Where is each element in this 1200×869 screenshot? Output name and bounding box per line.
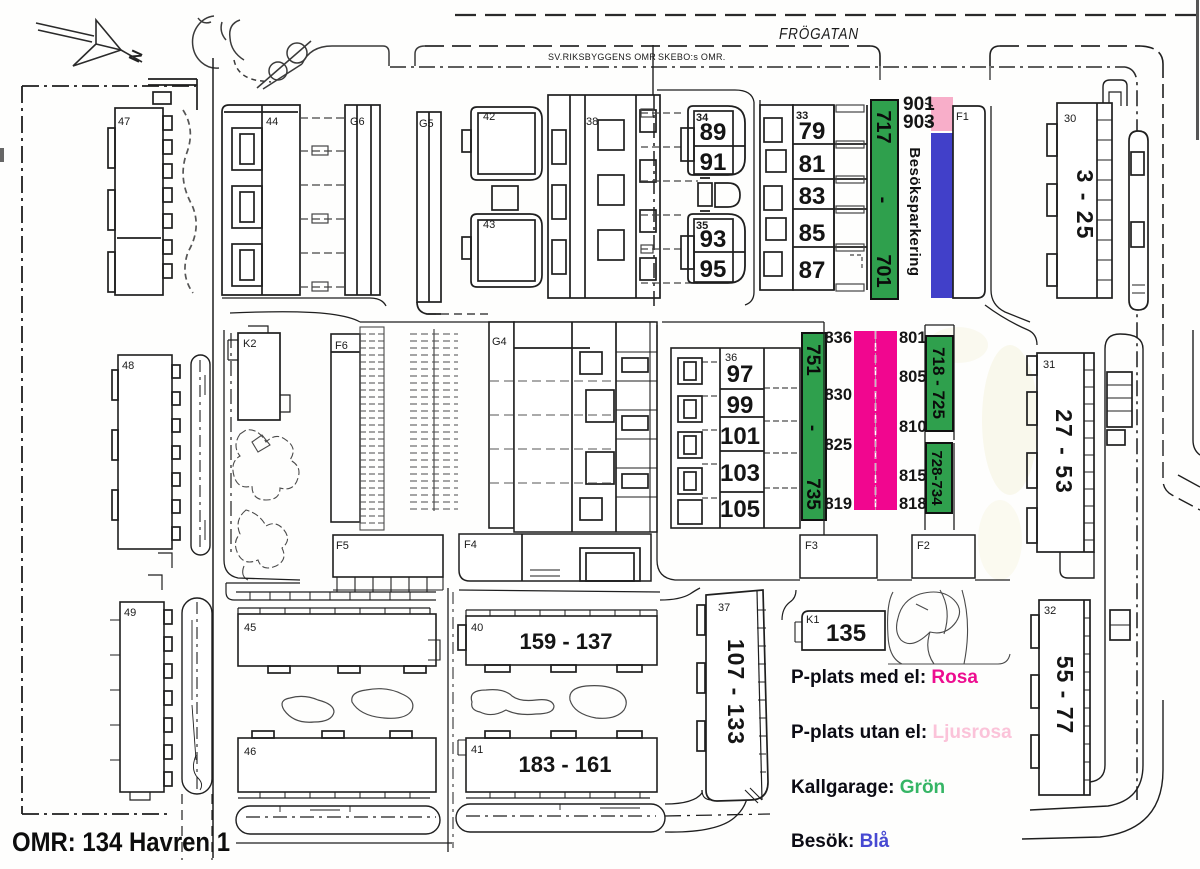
svg-text:38: 38 — [586, 116, 598, 128]
svg-text:825: 825 — [824, 436, 852, 454]
svg-text:37: 37 — [718, 602, 730, 614]
svg-text:F2: F2 — [917, 540, 930, 552]
svg-text:43: 43 — [483, 219, 495, 231]
svg-text:SKEBO:s OMR.: SKEBO:s OMR. — [658, 52, 726, 62]
svg-text:830: 830 — [824, 386, 852, 404]
svg-text:47: 47 — [118, 116, 130, 128]
svg-text:183 - 161: 183 - 161 — [519, 752, 612, 777]
svg-text:135: 135 — [826, 620, 866, 647]
svg-text:SV.RIKSBYGGENS OMR: SV.RIKSBYGGENS OMR — [548, 52, 656, 62]
svg-text:89: 89 — [700, 119, 727, 146]
svg-text:751: 751 — [802, 344, 823, 376]
svg-text:K2: K2 — [243, 338, 256, 350]
svg-text:F5: F5 — [336, 540, 349, 552]
svg-text:46: 46 — [244, 746, 256, 758]
svg-text:99: 99 — [727, 392, 754, 419]
svg-text:83: 83 — [799, 183, 826, 210]
svg-text:717: 717 — [872, 110, 894, 143]
svg-text:Besöksparkering: Besöksparkering — [906, 147, 923, 276]
svg-text:Kallgarage: Grön: Kallgarage: Grön — [791, 777, 945, 798]
svg-text:79: 79 — [799, 118, 826, 145]
svg-text:44: 44 — [266, 116, 278, 128]
svg-text:101: 101 — [720, 423, 760, 450]
svg-text:3 - 25: 3 - 25 — [1072, 170, 1098, 241]
svg-text:F4: F4 — [464, 539, 477, 551]
svg-text:159 - 137: 159 - 137 — [520, 629, 613, 654]
svg-text:P-plats utan el: Ljusrosa: P-plats utan el: Ljusrosa — [791, 722, 1012, 743]
svg-text:85: 85 — [799, 220, 826, 247]
svg-text:42: 42 — [483, 111, 495, 123]
svg-text:27 - 53: 27 - 53 — [1051, 409, 1077, 495]
svg-text:30: 30 — [1064, 113, 1076, 125]
svg-text:G4: G4 — [492, 336, 507, 348]
svg-text:31: 31 — [1043, 359, 1055, 371]
svg-text:F3: F3 — [805, 540, 818, 552]
svg-text:836: 836 — [824, 329, 852, 347]
svg-text:815: 815 — [899, 467, 927, 485]
svg-text:49: 49 — [124, 607, 136, 619]
svg-text:32: 32 — [1044, 605, 1056, 617]
svg-text:718 - 725: 718 - 725 — [929, 347, 948, 419]
svg-text:-: - — [802, 425, 823, 431]
svg-text:K1: K1 — [806, 614, 819, 626]
svg-text:45: 45 — [244, 622, 256, 634]
svg-text:FRÖGATAN: FRÖGATAN — [779, 25, 859, 43]
svg-text:95: 95 — [700, 256, 727, 283]
svg-text:55 - 77: 55 - 77 — [1052, 656, 1078, 735]
svg-text:F1: F1 — [956, 111, 969, 123]
svg-text:G6: G6 — [350, 116, 365, 128]
svg-text:F6: F6 — [335, 340, 348, 352]
svg-text:-: - — [872, 197, 894, 204]
svg-text:87: 87 — [799, 257, 826, 284]
svg-text:48: 48 — [122, 360, 134, 372]
svg-text:40: 40 — [471, 622, 483, 634]
svg-text:107 - 133: 107 - 133 — [723, 639, 749, 745]
svg-text:97: 97 — [727, 361, 754, 388]
svg-text:81: 81 — [799, 151, 826, 178]
svg-text:OMR: 134 Havren 1: OMR: 134 Havren 1 — [12, 827, 230, 857]
svg-text:41: 41 — [471, 744, 483, 756]
svg-text:810: 810 — [899, 418, 927, 436]
svg-text:728-734: 728-734 — [928, 450, 945, 506]
svg-text:103: 103 — [720, 460, 760, 487]
svg-text:93: 93 — [700, 226, 727, 253]
svg-text:819: 819 — [824, 495, 852, 513]
svg-text:735: 735 — [802, 478, 823, 510]
svg-text:G5: G5 — [419, 118, 434, 130]
svg-text:801: 801 — [899, 329, 927, 347]
svg-text:818: 818 — [899, 495, 927, 513]
svg-text:P-plats med el: Rosa: P-plats med el: Rosa — [791, 667, 978, 688]
svg-text:Besök: Blå: Besök: Blå — [791, 831, 890, 852]
svg-text:903: 903 — [903, 112, 935, 133]
svg-text:105: 105 — [720, 496, 760, 523]
svg-text:701: 701 — [872, 254, 894, 287]
svg-text:91: 91 — [700, 149, 727, 176]
svg-text:805: 805 — [899, 368, 927, 386]
